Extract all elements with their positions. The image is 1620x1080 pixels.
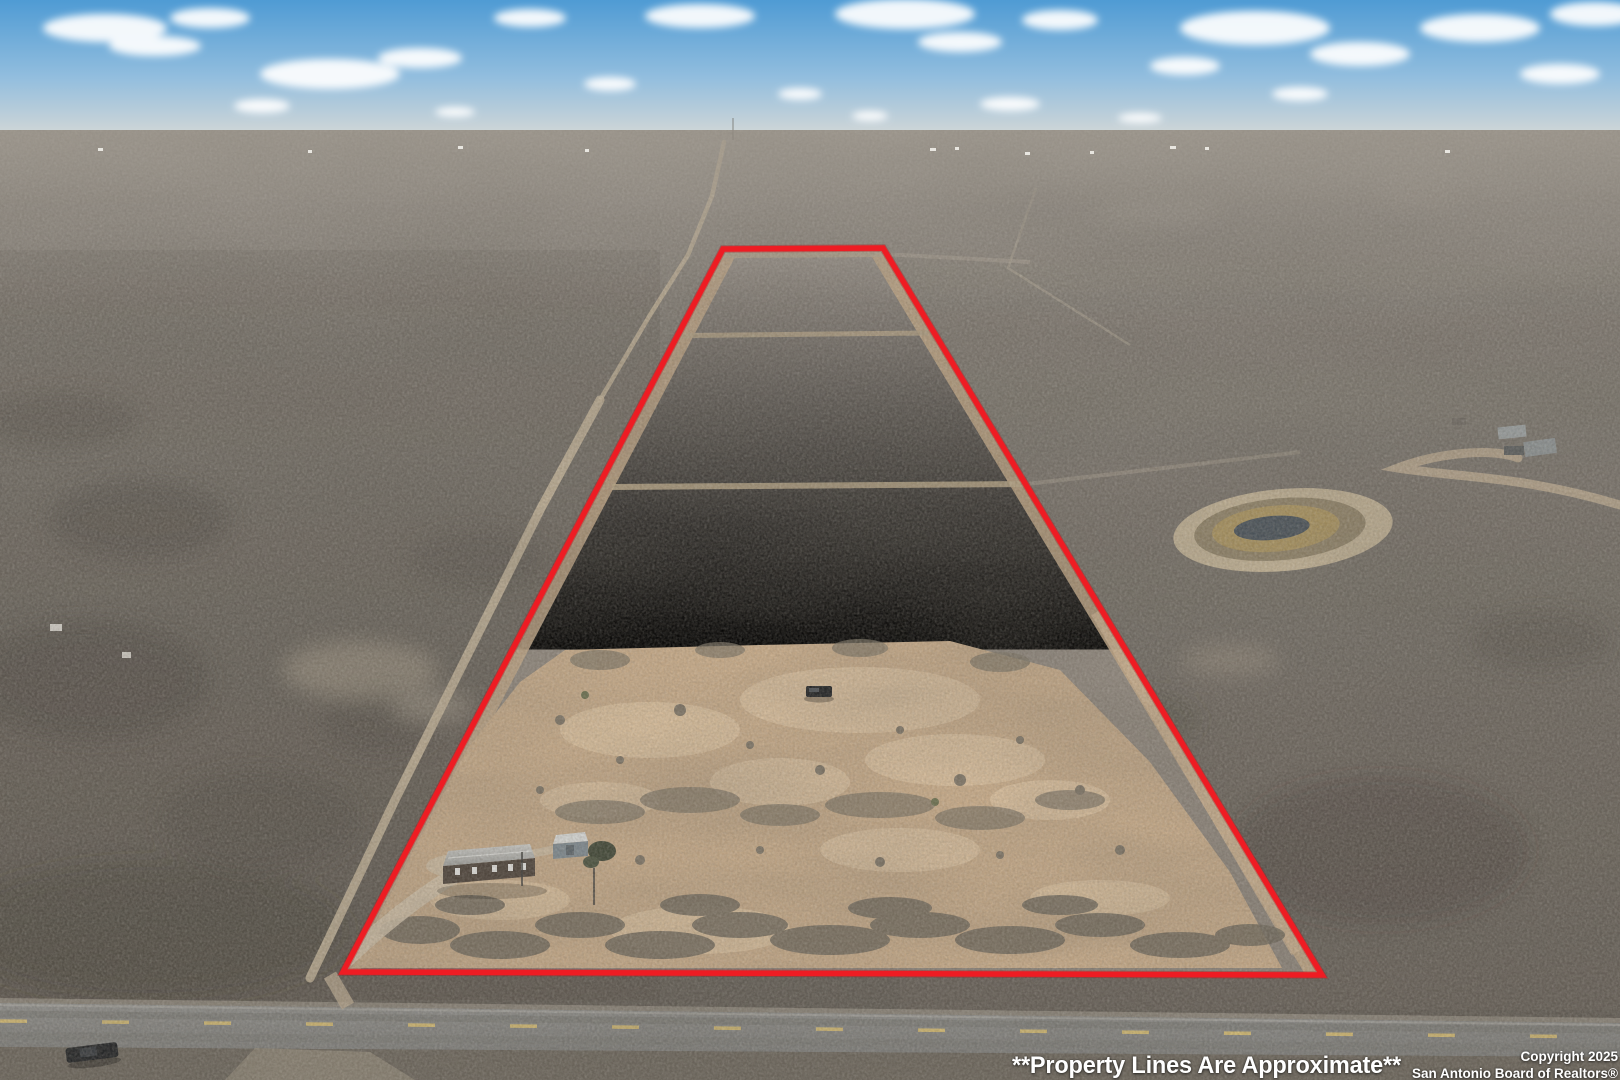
terrain-texture-overlay <box>0 130 1620 1080</box>
copyright-line1: Copyright 2025 <box>1412 1048 1618 1065</box>
aerial-photo: **Property Lines Are Approximate** Copyr… <box>0 0 1620 1080</box>
copyright-notice: Copyright 2025 San Antonio Board of Real… <box>1412 1048 1618 1080</box>
property-lines-disclaimer: **Property Lines Are Approximate** <box>1012 1052 1401 1080</box>
scene-canvas <box>0 0 1620 1080</box>
copyright-line2: San Antonio Board of Realtors® <box>1412 1065 1618 1080</box>
